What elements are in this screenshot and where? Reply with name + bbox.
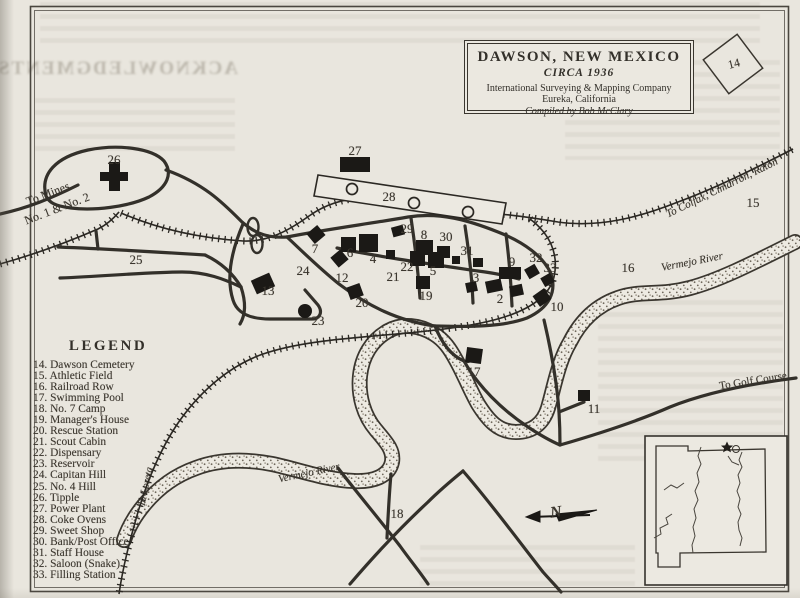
legend-item-33: 33. Filling Station xyxy=(33,570,213,581)
map-number-32: 32 xyxy=(530,250,543,266)
map-number-3: 3 xyxy=(473,270,480,286)
map-number-27: 27 xyxy=(349,143,362,159)
map-title: DAWSON, NEW MEXICO xyxy=(468,49,690,66)
map-number-6: 6 xyxy=(347,245,354,261)
map-label-compass-n: N xyxy=(549,503,563,522)
map-number-12: 12 xyxy=(336,270,349,286)
map-number-16: 16 xyxy=(622,260,635,276)
map-company-city: Eureka, California xyxy=(468,94,690,105)
map-label-vermejo-east: Vermejo River xyxy=(660,250,724,274)
legend-items: 14. Dawson Cemetery15. Athletic Field16.… xyxy=(33,360,213,581)
map-number-22: 22 xyxy=(401,259,414,275)
map-title-box-inner: DAWSON, NEW MEXICO CIRCA 1936 Internatio… xyxy=(467,43,691,111)
map-number-28: 28 xyxy=(383,189,396,205)
map-number-33: 33 xyxy=(544,260,557,276)
legend: LEGEND 14. Dawson Cemetery15. Athletic F… xyxy=(33,338,213,581)
map-number-13: 13 xyxy=(262,283,275,299)
map-text-overlay: DAWSON, NEW MEXICO CIRCA 1936 Internatio… xyxy=(0,0,800,598)
legend-item-27: 27. Power Plant xyxy=(33,504,213,515)
map-number-23: 23 xyxy=(312,313,325,329)
map-number-25: 25 xyxy=(130,252,143,268)
map-number-8: 8 xyxy=(421,227,428,243)
map-number-4: 4 xyxy=(370,251,377,267)
legend-item-26: 26. Tipple xyxy=(33,493,213,504)
map-number-17: 17 xyxy=(468,364,481,380)
map-number-15: 15 xyxy=(747,195,760,211)
map-number-31: 31 xyxy=(461,243,474,259)
map-label-to-colfax: To Colfax, Cimarron, Raton xyxy=(664,156,780,221)
legend-item-25: 25. No. 4 Hill xyxy=(33,482,213,493)
map-number-7: 7 xyxy=(312,241,319,257)
map-label-vermejo-center: Vermejo River xyxy=(277,461,341,486)
map-label-to-golf-course: To Golf Course xyxy=(718,370,787,393)
map-number-18: 18 xyxy=(391,506,404,522)
map-number-10: 10 xyxy=(551,299,564,315)
map-number-26: 26 xyxy=(108,152,121,168)
map-compiled-by: Compiled by Bob McClary xyxy=(468,106,690,117)
map-title-box: DAWSON, NEW MEXICO CIRCA 1936 Internatio… xyxy=(464,40,694,114)
map-company: International Surveying & Mapping Compan… xyxy=(468,83,690,94)
map-number-5: 5 xyxy=(430,263,437,279)
legend-item-24: 24. Capitan Hill xyxy=(33,470,213,481)
map-number-11: 11 xyxy=(588,401,601,417)
map-number-20: 20 xyxy=(356,295,369,311)
map-subtitle-circa: CIRCA 1936 xyxy=(468,67,690,79)
map-number-2: 2 xyxy=(497,291,504,307)
map-number-29: 29 xyxy=(401,221,414,237)
map-number-21: 21 xyxy=(387,269,400,285)
map-number-24: 24 xyxy=(297,263,310,279)
map-number-9: 9 xyxy=(509,254,516,270)
legend-title: LEGEND xyxy=(33,338,183,355)
scanned-book-page: ACKNOWLEDGMENTS xyxy=(0,0,800,598)
map-number-19: 19 xyxy=(420,288,433,304)
map-number-30: 30 xyxy=(440,229,453,245)
map-label-cemetery-number: 14 xyxy=(726,55,741,72)
